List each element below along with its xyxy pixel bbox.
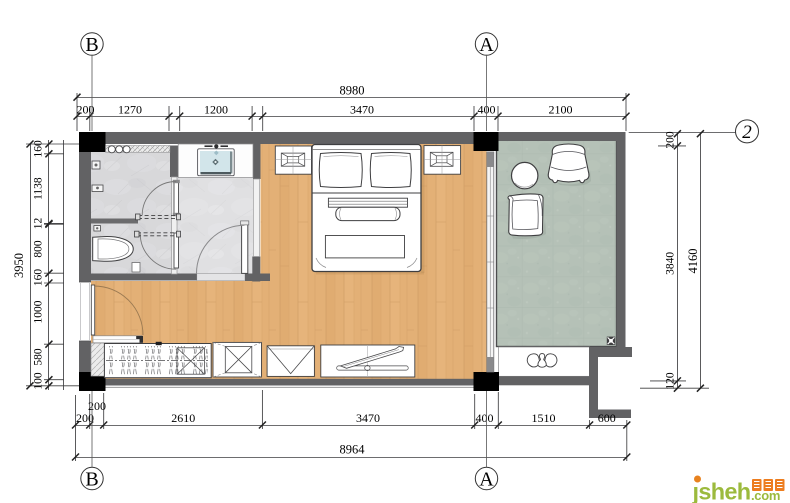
svg-text:12: 12 — [33, 218, 45, 230]
svg-text:8980: 8980 — [340, 84, 365, 98]
svg-text:8964: 8964 — [340, 443, 366, 457]
svg-text:1200: 1200 — [204, 103, 228, 117]
svg-text:3950: 3950 — [12, 253, 26, 278]
svg-text:B: B — [85, 34, 98, 56]
svg-text:1270: 1270 — [118, 103, 142, 117]
svg-text:4160: 4160 — [686, 249, 700, 274]
svg-text:2610: 2610 — [171, 411, 195, 425]
svg-text:3470: 3470 — [356, 411, 380, 425]
svg-text:600: 600 — [598, 411, 616, 425]
svg-text:1138: 1138 — [33, 177, 45, 200]
svg-text:A: A — [479, 469, 494, 491]
svg-text:200: 200 — [76, 411, 94, 425]
svg-text:1510: 1510 — [532, 411, 556, 425]
svg-text:400: 400 — [476, 411, 494, 425]
svg-text:2: 2 — [742, 122, 752, 143]
svg-text:580: 580 — [33, 348, 45, 366]
svg-text:3470: 3470 — [350, 103, 374, 117]
svg-text:100: 100 — [33, 372, 45, 390]
svg-text:A: A — [479, 34, 494, 56]
svg-text:200: 200 — [665, 131, 677, 149]
svg-text:800: 800 — [33, 240, 45, 258]
svg-text:160: 160 — [33, 140, 45, 158]
svg-text:1000: 1000 — [33, 300, 45, 323]
svg-text:3840: 3840 — [665, 252, 677, 275]
svg-text:160: 160 — [33, 269, 45, 287]
svg-text:120: 120 — [665, 372, 677, 390]
svg-text:B: B — [85, 469, 98, 491]
svg-text:2100: 2100 — [549, 103, 573, 117]
